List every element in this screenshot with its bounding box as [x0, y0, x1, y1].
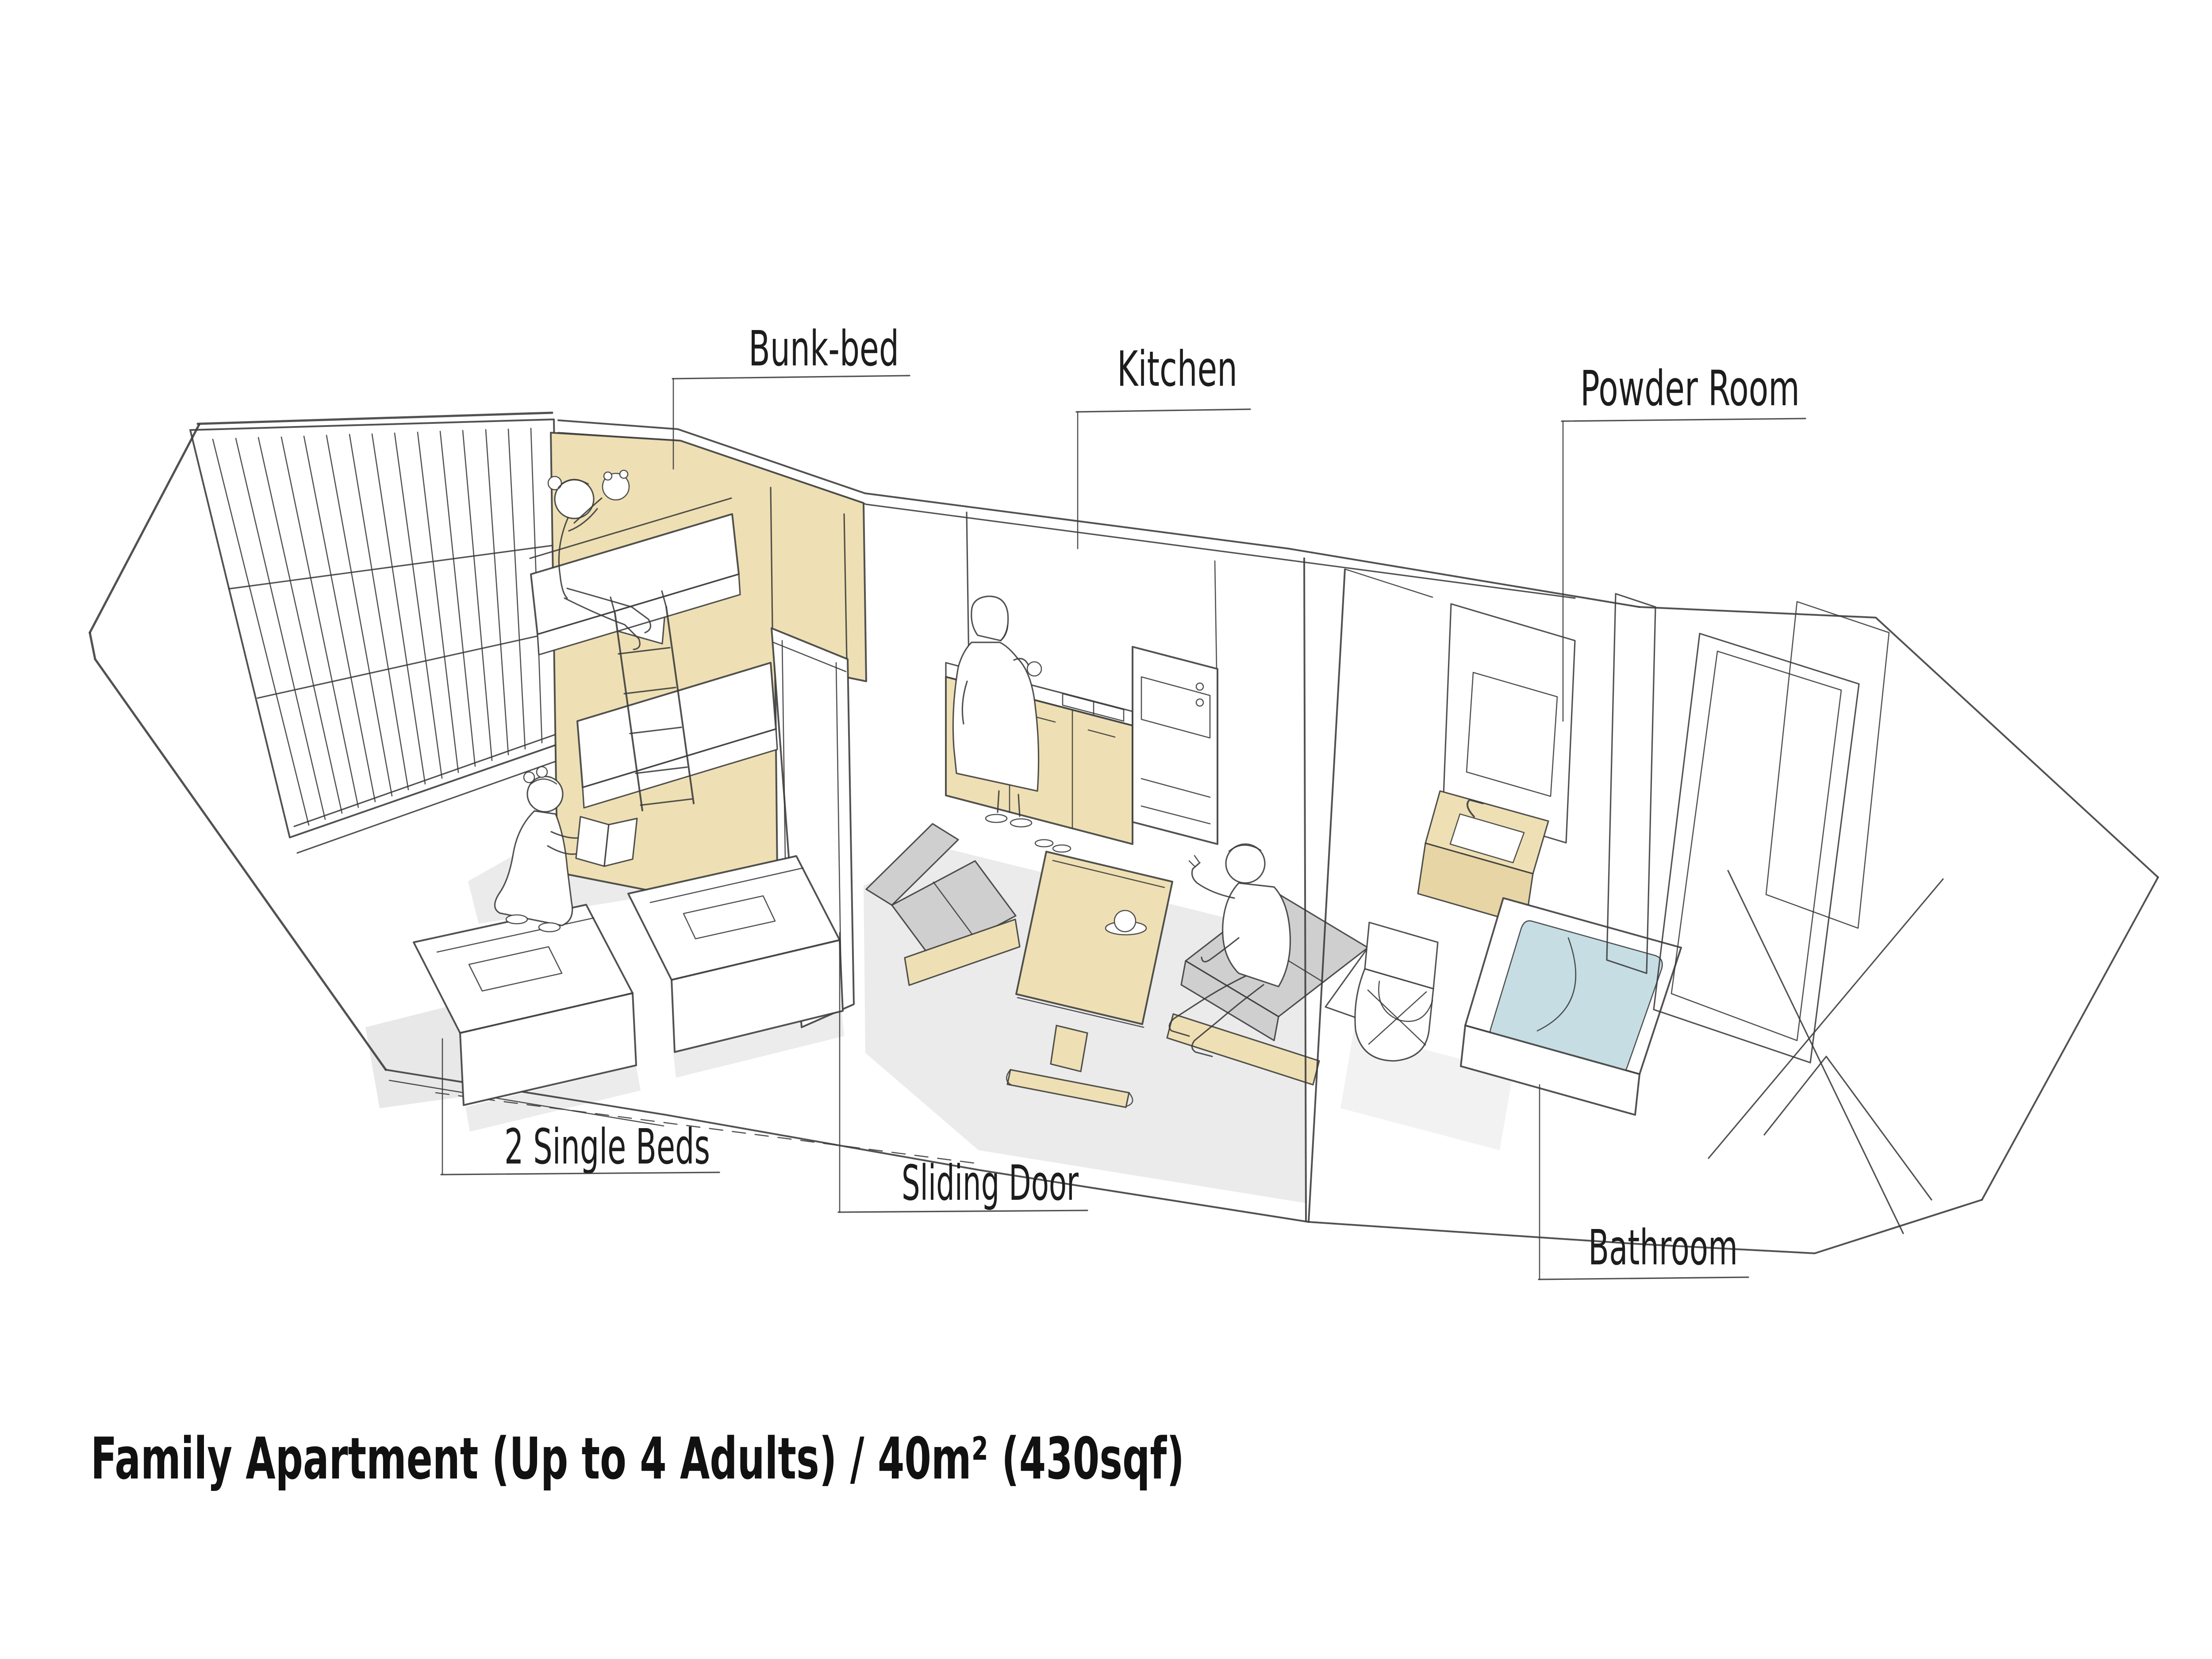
man-head	[1226, 844, 1265, 883]
window-wall	[190, 419, 562, 853]
bunk-bed-label: Bunk-bed	[749, 320, 899, 377]
woman-head	[972, 596, 1008, 641]
bathroom-underline	[1539, 1277, 1748, 1279]
open-book	[576, 817, 609, 866]
mirror	[1467, 672, 1557, 796]
powder-room-underline	[1562, 419, 1805, 421]
single-beds-label: 2 Single Beds	[504, 1118, 710, 1175]
apple	[1027, 662, 1041, 676]
kitchen-label: Kitchen	[1117, 341, 1237, 397]
annotation-kitchen: Kitchen	[1076, 341, 1250, 549]
sliding-door-underline	[838, 1210, 1087, 1212]
coffee-cup	[1114, 910, 1136, 932]
sliding-door-label: Sliding Door	[902, 1155, 1079, 1211]
annotation-bunk-bed: Bunk-bed	[672, 320, 910, 469]
kitchen-underline	[1076, 409, 1250, 412]
powder-room-label: Powder Room	[1580, 360, 1800, 417]
bathroom-label: Bathroom	[1588, 1219, 1738, 1276]
annotation-bathroom: Bathroom	[1539, 1085, 1748, 1279]
page-title: Family Apartment (Up to 4 Adults) / 40m²…	[91, 1425, 1184, 1492]
sketch-canvas: Bunk-bed Kitchen Powder Room 2 Single Be…	[0, 0, 2212, 1659]
sketch-page: Bunk-bed Kitchen Powder Room 2 Single Be…	[0, 0, 2212, 1659]
